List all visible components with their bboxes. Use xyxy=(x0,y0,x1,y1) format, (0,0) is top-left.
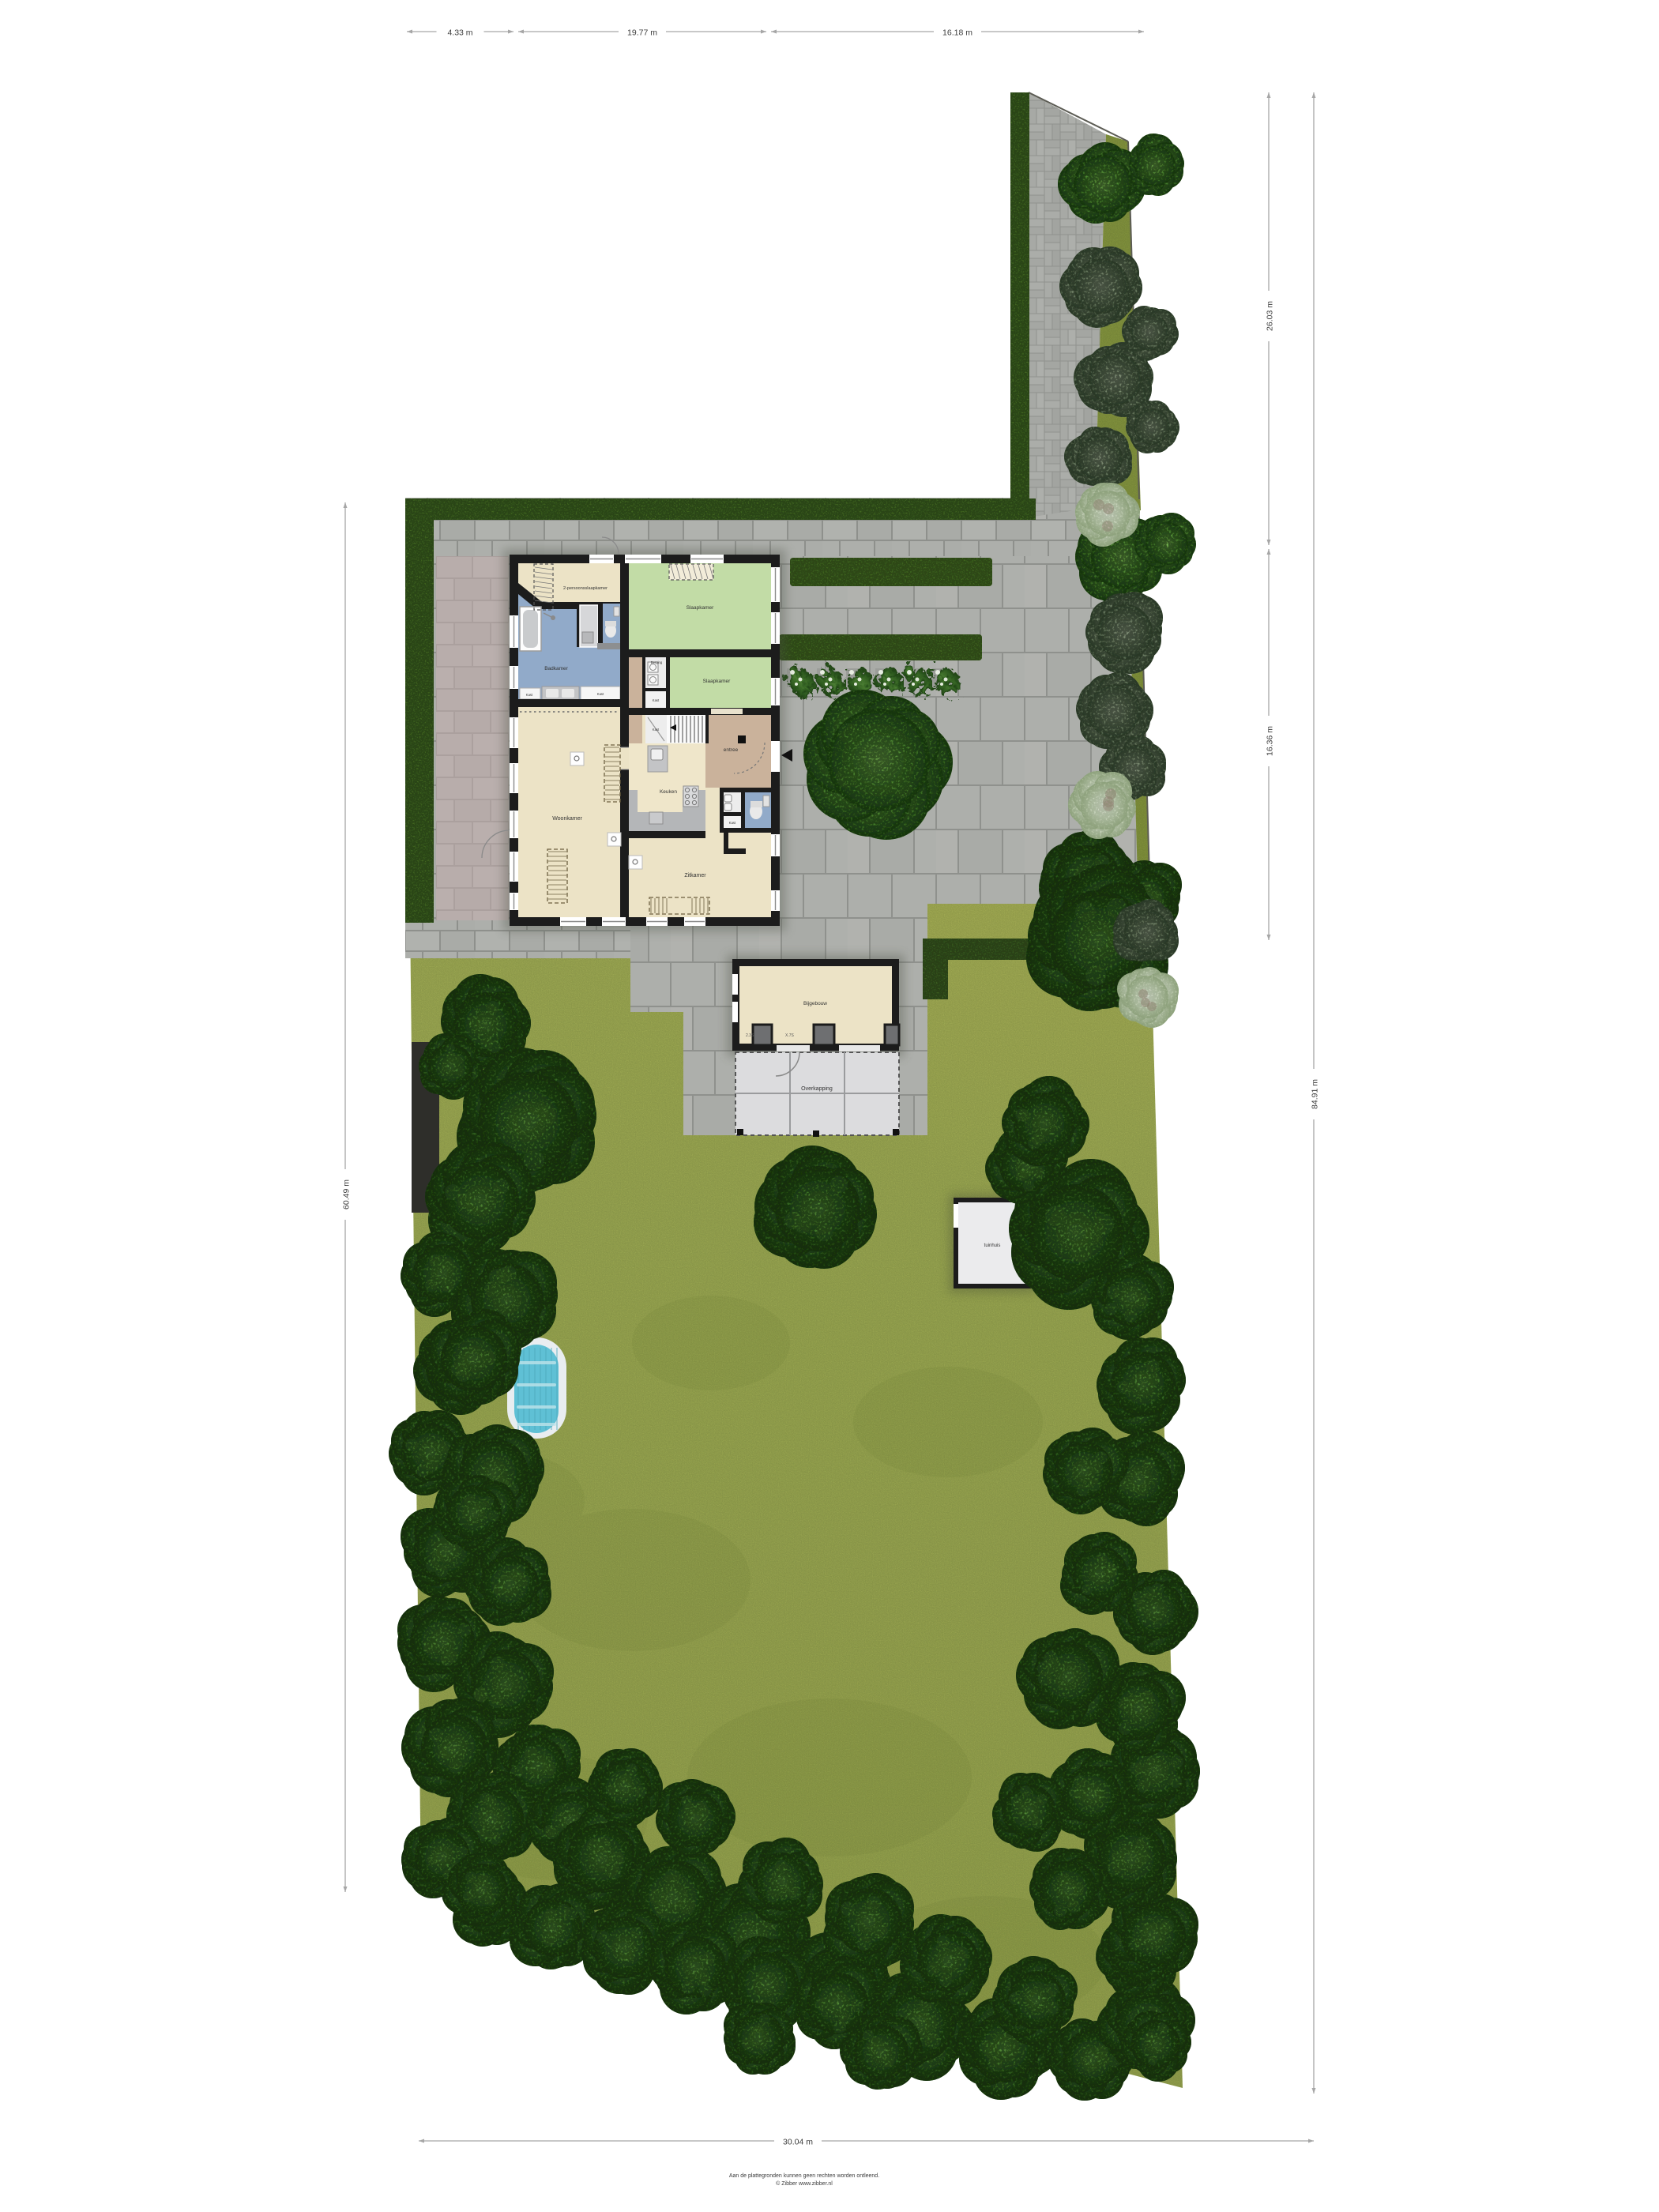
svg-text:Keuken: Keuken xyxy=(660,789,677,795)
svg-text:30.04 m: 30.04 m xyxy=(783,2138,813,2147)
svg-text:Woonkamer: Woonkamer xyxy=(552,816,582,822)
svg-text:Kast: Kast xyxy=(729,821,736,825)
svg-text:Kast: Kast xyxy=(526,693,533,697)
svg-text:Aan de plattegronden kunnen ge: Aan de plattegronden kunnen geen rechten… xyxy=(729,2173,879,2179)
svg-text:16.36 m: 16.36 m xyxy=(1266,726,1275,756)
svg-text:Zitkamer: Zitkamer xyxy=(684,873,706,878)
svg-text:26.03 m: 26.03 m xyxy=(1266,301,1275,331)
svg-text:2-persoonsslaapkamer: 2-persoonsslaapkamer xyxy=(563,586,608,591)
svg-text:Kast: Kast xyxy=(597,692,604,696)
svg-text:Kast: Kast xyxy=(653,698,660,702)
svg-text:16.18 m: 16.18 m xyxy=(942,28,972,38)
svg-text:Kast: Kast xyxy=(653,728,660,732)
svg-text:© Zibber www.zibber.nl: © Zibber www.zibber.nl xyxy=(776,2180,833,2187)
svg-text:Berging: Berging xyxy=(651,660,663,664)
svg-text:tuinhuis: tuinhuis xyxy=(984,1243,1001,1248)
svg-text:19.77 m: 19.77 m xyxy=(627,28,657,38)
svg-text:4.33 m: 4.33 m xyxy=(447,28,472,38)
svg-text:Bijgebouw: Bijgebouw xyxy=(803,1001,827,1006)
svg-text:Badkamer: Badkamer xyxy=(544,666,568,671)
svg-text:X.7S: X.7S xyxy=(785,1033,795,1038)
svg-text:Slaapkamer: Slaapkamer xyxy=(687,605,715,611)
svg-text:84.91 m: 84.91 m xyxy=(1311,1079,1320,1109)
svg-text:Slaapkamer: Slaapkamer xyxy=(703,679,732,684)
svg-text:Overkapping: Overkapping xyxy=(801,1086,833,1092)
svg-text:entree: entree xyxy=(724,747,739,753)
svg-text:60.49 m: 60.49 m xyxy=(342,1179,352,1209)
svg-text:2.3S: 2.3S xyxy=(746,1033,754,1038)
